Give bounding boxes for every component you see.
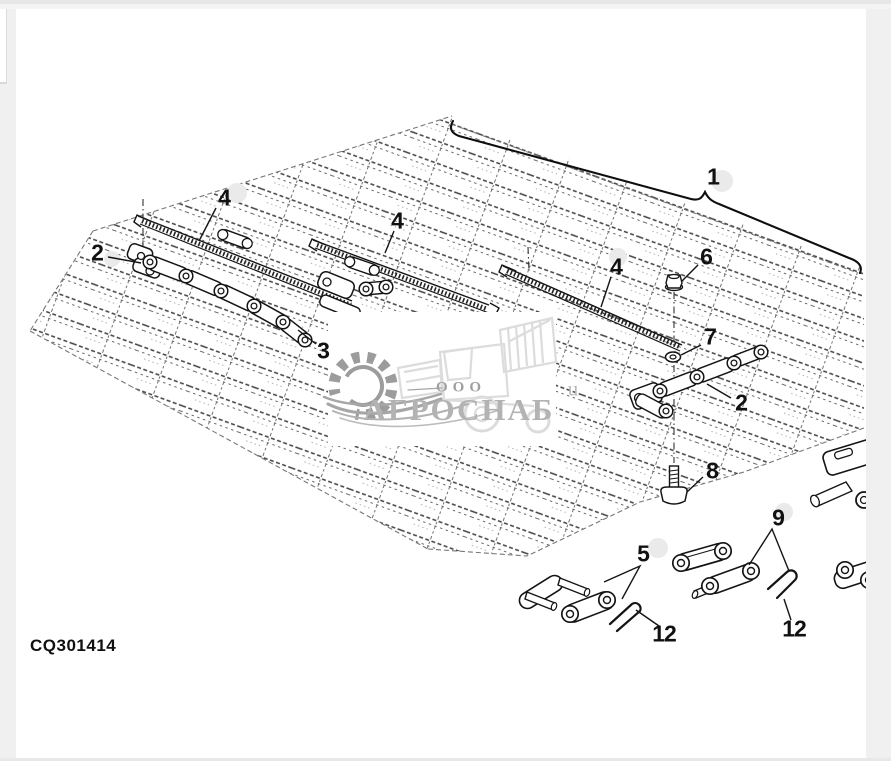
top-strip-light (0, 4, 891, 9)
drawing-code: CQ301414 (30, 636, 116, 656)
callout-12-right: 12 (782, 616, 806, 643)
callout-2-left: 2 (91, 240, 103, 267)
corner-tab (0, 9, 7, 84)
cotter-pin-right-icon (768, 570, 797, 598)
callout-8: 8 (706, 458, 718, 485)
callout-7: 7 (704, 324, 716, 351)
callout-12-left: 12 (652, 621, 676, 648)
callout-2-right: 2 (735, 390, 747, 417)
callout-4-middle: 4 (391, 208, 403, 235)
chain-link-pair (673, 542, 759, 599)
flange-nut-icon (666, 275, 683, 291)
watermark-company-name: АГРОСНАБ (364, 392, 555, 428)
washer-icon (666, 352, 681, 362)
callout-9: 9 (772, 505, 784, 532)
left-margin (0, 9, 16, 758)
cotter-pin-left-icon (610, 603, 641, 631)
parts-diagram-page: ООО АГРОСНАБ u 1 2 4 4 3 4 6 7 2 8 9 5 1… (0, 0, 891, 761)
chain-link-pin-assembly (516, 572, 616, 624)
callout-4-left: 4 (218, 185, 230, 212)
right-margin (866, 9, 891, 758)
callout-3: 3 (317, 338, 329, 365)
watermark-ghost-letter: u (568, 377, 579, 402)
callout-6: 6 (700, 244, 712, 271)
callout-5: 5 (637, 541, 649, 568)
callout-4-right: 4 (610, 254, 622, 281)
callout-1: 1 (707, 164, 719, 191)
